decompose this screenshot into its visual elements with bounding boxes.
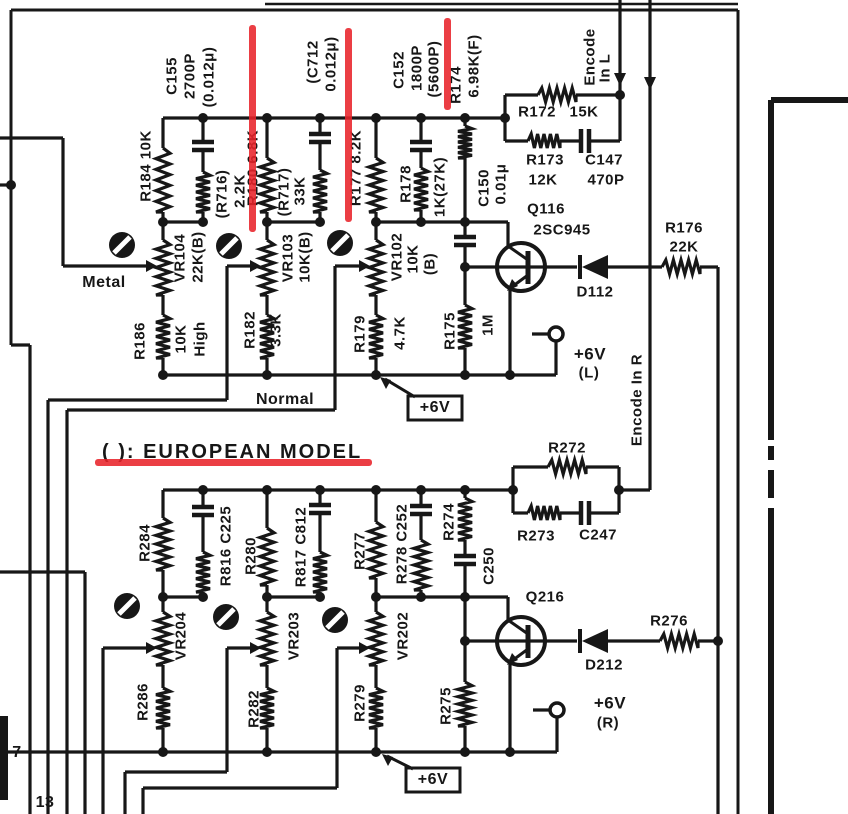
signal-arrow-icon [614,73,626,86]
resistor-vr102-symbol [369,240,383,295]
wire [508,620,528,634]
component-label: Normal [256,392,314,408]
component-label: R173 [526,153,564,168]
resistor-r279-symbol [369,688,383,728]
resistor-r716-symbol [196,172,210,212]
component-label: (5600P) [427,41,442,98]
component-label: 3.3K [269,313,284,347]
resistor-vr202-symbol [369,612,383,665]
resistor-r276-symbol [660,634,698,648]
junction-dot [371,747,381,757]
junction-dot [198,113,208,123]
resistor-r277-symbol [369,522,383,578]
junction-dot [371,592,381,602]
component-label: +6V [420,400,450,416]
junction-dot [262,592,272,602]
component-label: In L [598,54,613,83]
trimmer-screw-icon [213,604,239,630]
component-label: R278 C252 [395,504,410,584]
component-label: 15K [569,105,598,120]
component-label: R175 [443,312,458,350]
component-label: (R) [597,716,619,731]
component-label: VR202 [396,612,411,660]
junction-dot [460,370,470,380]
junction-dot [315,113,325,123]
resistor-r273-symbol [528,506,560,520]
component-label: VR104 [173,234,188,282]
resistor-vr203-symbol [260,612,274,665]
component-label: R279 [353,684,368,722]
trimmer-screw-icon [216,233,242,259]
junction-dot [460,592,470,602]
junction-dot [158,747,168,757]
junction-dot [460,636,470,646]
resistor-r177-symbol [369,158,383,212]
component-label: D112 [576,285,613,300]
resistor-r280-symbol [260,528,274,585]
component-label: 10K [406,244,421,273]
junction-dot [460,262,470,272]
capacitor-c252-symbol [410,506,432,514]
junction-dot [6,180,16,190]
junction-dot [460,747,470,757]
component-label: 7 [12,745,21,761]
trimmer-screw-icon [114,593,140,619]
resistor-r817-symbol [313,552,327,592]
junction-dot [505,747,515,757]
component-label: VR103 [281,234,296,282]
junction-dot [460,217,470,227]
diode-d112-symbol [580,255,608,279]
junction-dot [615,90,625,100]
resistor-r174-symbol [458,126,472,158]
junction-dot [198,592,208,602]
resistor-r173-symbol [528,134,560,148]
resistor-r179-symbol [369,315,383,358]
capacitor-c155-symbol [192,142,214,150]
component-label: R275 [439,687,454,725]
trimmer-screw-icon [109,232,135,258]
junction-dot [713,636,723,646]
capacitor-c147-symbol [581,129,589,153]
pointer-arrow-icon [382,754,393,766]
junction-dot [500,113,510,123]
resistor-r274-symbol [458,498,472,540]
component-label: (L) [579,366,600,381]
red-annotation-mark [95,459,372,466]
component-label: 10K(B) [298,231,313,282]
capacitor-c247-symbol [581,501,589,525]
component-label: C147 [585,153,623,168]
resistor-r172-symbol [538,88,576,102]
component-label: R282 [247,690,262,728]
component-label: D212 [585,658,623,673]
capacitor-c150-symbol [454,237,476,245]
component-label: VR203 [287,612,302,660]
junction-dot [198,217,208,227]
component-label: R179 [353,315,368,353]
resistor-r186-symbol [156,315,170,358]
red-annotation-mark [249,25,256,232]
resistor-r717-symbol [313,170,327,212]
component-label: 12K [528,173,557,188]
resistor-vr103-symbol [260,240,274,295]
junction-dot [262,747,272,757]
supply-terminal-icon [549,327,563,341]
junction-dot [371,485,381,495]
component-label: 10K [174,324,189,353]
component-label: 1M [481,314,496,336]
junction-dot [262,217,272,227]
component-label: 0.012μ) [324,36,339,91]
component-label: C152 [392,51,407,89]
component-label: +6V [574,346,606,363]
resistor-r178-symbol [414,168,428,210]
supply-terminal-icon [550,703,564,717]
component-label: VR204 [174,612,189,660]
component-label: Encode In R [630,354,645,446]
resistor-vr104-symbol [156,240,170,295]
component-label: C250 [482,547,497,585]
component-label: C150 [477,169,492,207]
resistor-r278-symbol [414,540,428,590]
component-label: R817 C812 [294,507,309,587]
junction-dot [416,592,426,602]
resistor-vr204-symbol [156,612,170,665]
component-label: 470P [587,173,624,188]
junction-dot [262,485,272,495]
component-label: R816 C225 [219,506,234,586]
red-annotation-mark [444,18,451,110]
resistor-r286-symbol [156,688,170,728]
component-label: R272 [548,441,586,456]
component-label: R277 [353,532,368,570]
junction-dot [198,485,208,495]
component-label: 2700P [183,53,198,99]
wiper-arrow-icon [250,642,261,654]
component-label: +6V [594,695,626,712]
component-label: High [193,321,208,356]
component-label: 22K [669,240,698,255]
capacitor-c152-symbol [410,142,432,150]
component-label: R284 [138,524,153,562]
component-label: 4.7K [393,316,408,350]
component-label: (C712 [306,40,321,83]
trimmer-screw-icon [327,230,353,256]
component-label: R286 [136,683,151,721]
wiper-arrow-icon [146,260,157,272]
junction-dot [158,370,168,380]
component-label: C247 [579,528,617,543]
component-label: C155 [165,57,180,95]
resistor-r180-symbol [260,158,274,212]
wiper-arrow-icon [359,642,370,654]
component-label: 33K [293,176,308,205]
junction-dot [508,485,518,495]
wiper-arrow-icon [146,642,157,654]
component-label: R274 [442,503,457,541]
component-label: R273 [517,529,555,544]
component-label: 0.01μ [494,164,509,205]
wiper-arrow-icon [359,260,370,272]
junction-dot [315,485,325,495]
component-label: Metal [82,275,125,291]
junction-dot [315,217,325,227]
junction-dot [262,370,272,380]
component-label: (0.012μ) [202,47,217,108]
component-label: 22K(B) [191,231,206,282]
resistor-r176-symbol [662,260,700,274]
capacitor-c812-symbol [309,505,331,513]
component-label: 1800P [410,45,425,91]
schematic-page: C1552700P(0.012μ)R184 10K(R716)2.2KR180 … [0,0,848,814]
junction-dot [158,217,168,227]
component-label: R172 [518,105,556,120]
resistor-r275-symbol [458,682,472,726]
component-label: (R717) [277,168,292,217]
component-label: R182 [243,311,258,349]
junction-dot [416,217,426,227]
junction-dot [158,592,168,602]
connector-edge-bar [0,716,8,800]
component-label: (R716) [215,170,230,219]
capacitor-c250-symbol [454,556,476,564]
junction-dot [262,113,272,123]
signal-arrow-icon [644,77,656,90]
component-label: 2SC945 [533,223,590,238]
trimmer-screw-icon [322,607,348,633]
junction-dot [416,485,426,495]
junction-dot [614,485,624,495]
capacitor-c712-symbol [309,134,331,142]
component-label: +6V [418,772,448,788]
resistor-r175-symbol [458,305,472,348]
component-label: VR102 [390,233,405,281]
component-label: R184 10K [139,130,154,202]
junction-dot [371,217,381,227]
junction-dot [460,113,470,123]
resistor-r284-symbol [156,518,170,570]
component-label: 13 [36,795,55,811]
junction-dot [315,592,325,602]
red-annotation-mark [345,28,352,222]
component-label: 6.98K(F) [467,34,482,97]
junction-dot [416,113,426,123]
capacitor-c225-symbol [192,507,214,515]
junction-dot [460,485,470,495]
component-label: Q116 [527,202,565,217]
resistor-r272-symbol [548,460,586,474]
wire [508,246,528,260]
component-label: R276 [650,614,688,629]
resistor-r184-symbol [156,148,170,212]
component-label: Q216 [526,590,565,605]
diode-d212-symbol [580,629,608,653]
component-label: Encode [583,28,598,85]
component-label: R280 [244,537,259,575]
wiper-arrow-icon [250,260,261,272]
junction-dot [505,370,515,380]
component-label: (B) [423,253,438,275]
resistor-r816-symbol [196,552,210,592]
junction-dot [371,370,381,380]
component-label: R176 [665,221,703,236]
component-label: 1K(27K) [433,157,448,217]
component-label: R178 [399,165,414,203]
component-label: R186 [133,322,148,360]
junction-dot [371,113,381,123]
